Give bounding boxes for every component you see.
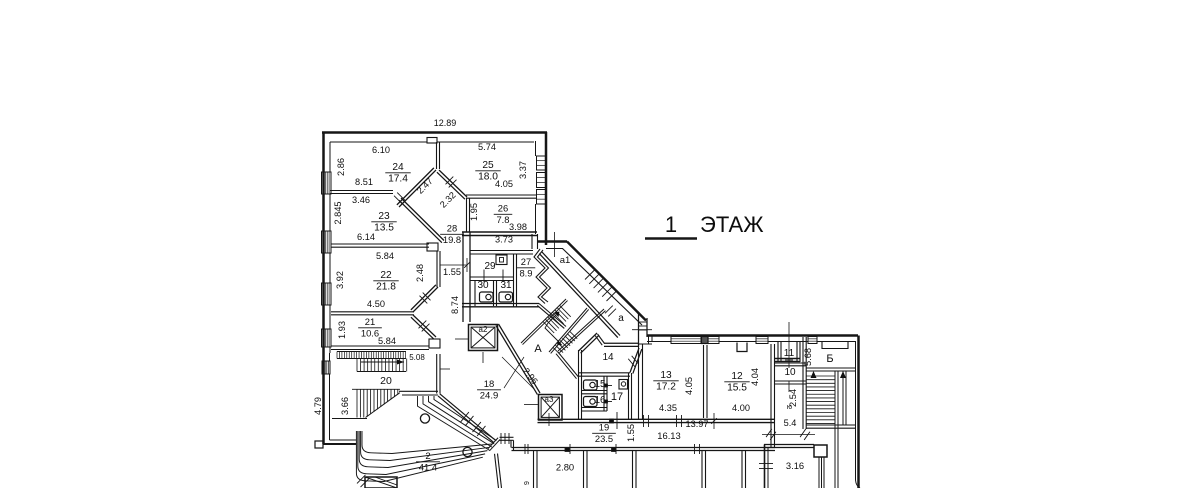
svg-text:13.97: 13.97 xyxy=(686,419,709,429)
svg-text:5.84: 5.84 xyxy=(376,251,394,261)
svg-text:8.9: 8.9 xyxy=(519,268,532,279)
svg-text:30: 30 xyxy=(477,280,489,291)
svg-text:2.48: 2.48 xyxy=(415,264,425,282)
svg-text:20: 20 xyxy=(380,375,392,387)
svg-text:3.73: 3.73 xyxy=(495,235,513,245)
svg-text:10.6: 10.6 xyxy=(361,328,379,339)
svg-text:7.8: 7.8 xyxy=(496,214,509,225)
svg-text:3.92: 3.92 xyxy=(335,271,345,289)
svg-text:4.35: 4.35 xyxy=(659,403,677,413)
svg-text:1.95: 1.95 xyxy=(469,203,479,221)
svg-text:16.13: 16.13 xyxy=(657,430,680,441)
svg-text:5.08: 5.08 xyxy=(409,353,425,362)
svg-text:1.55: 1.55 xyxy=(443,267,461,277)
svg-text:1: 1 xyxy=(665,212,677,237)
svg-text:4.79: 4.79 xyxy=(313,397,323,415)
svg-text:24: 24 xyxy=(392,162,404,173)
svg-text:6.10: 6.10 xyxy=(372,145,390,155)
svg-text:8.51: 8.51 xyxy=(355,177,373,187)
svg-text:a3: a3 xyxy=(545,395,554,404)
svg-text:9: 9 xyxy=(524,481,531,485)
svg-text:14: 14 xyxy=(602,352,614,363)
svg-text:2.86: 2.86 xyxy=(336,158,346,176)
svg-text:3.66: 3.66 xyxy=(340,397,350,415)
svg-text:24.9: 24.9 xyxy=(480,391,499,402)
svg-text:12: 12 xyxy=(731,371,743,382)
svg-text:2: 2 xyxy=(425,451,430,462)
svg-text:1.93: 1.93 xyxy=(337,321,347,339)
svg-text:23.5: 23.5 xyxy=(595,433,613,444)
svg-text:ю: ю xyxy=(787,404,792,411)
svg-text:28: 28 xyxy=(447,223,457,234)
svg-text:17: 17 xyxy=(611,391,623,403)
svg-text:4.05: 4.05 xyxy=(495,179,513,189)
svg-text:13.5: 13.5 xyxy=(374,223,394,234)
svg-text:1.55: 1.55 xyxy=(626,424,636,442)
svg-text:17.4: 17.4 xyxy=(388,174,408,185)
svg-text:15.5: 15.5 xyxy=(727,383,747,394)
svg-text:21: 21 xyxy=(365,316,375,327)
svg-text:a1: a1 xyxy=(560,255,571,266)
svg-text:8.74: 8.74 xyxy=(450,296,460,314)
svg-text:26: 26 xyxy=(498,203,508,214)
svg-text:5.4: 5.4 xyxy=(784,418,797,428)
svg-text:ЭТАЖ: ЭТАЖ xyxy=(700,212,764,237)
svg-text:2.80: 2.80 xyxy=(556,462,574,473)
svg-text:4.04: 4.04 xyxy=(750,368,760,386)
svg-text:25: 25 xyxy=(482,160,494,171)
svg-text:a2: a2 xyxy=(479,325,488,334)
svg-text:3.37: 3.37 xyxy=(518,161,528,179)
svg-text:6.14: 6.14 xyxy=(357,232,375,242)
svg-text:19.8: 19.8 xyxy=(443,234,461,245)
svg-text:29: 29 xyxy=(484,261,496,272)
svg-text:5.74: 5.74 xyxy=(478,142,496,152)
svg-text:Б: Б xyxy=(826,353,833,365)
svg-text:21.8: 21.8 xyxy=(376,282,396,293)
svg-text:4.50: 4.50 xyxy=(367,299,385,309)
svg-text:5.84: 5.84 xyxy=(378,336,396,346)
svg-text:17.2: 17.2 xyxy=(656,382,676,393)
svg-text:a: a xyxy=(618,313,624,324)
svg-text:10: 10 xyxy=(784,367,796,378)
svg-text:2.845: 2.845 xyxy=(333,202,343,225)
svg-text:12.89: 12.89 xyxy=(434,118,457,128)
svg-text:22: 22 xyxy=(380,270,392,281)
svg-text:18: 18 xyxy=(484,379,495,390)
svg-text:5.68: 5.68 xyxy=(803,348,813,366)
svg-text:3.98: 3.98 xyxy=(509,222,527,232)
svg-text:3.16: 3.16 xyxy=(786,460,804,471)
svg-text:4.00: 4.00 xyxy=(732,403,750,413)
svg-text:19: 19 xyxy=(599,422,609,433)
svg-text:A: A xyxy=(534,343,542,355)
svg-text:3.46: 3.46 xyxy=(352,195,370,205)
svg-text:27: 27 xyxy=(521,256,531,267)
svg-text:31: 31 xyxy=(500,280,512,291)
svg-text:41.4: 41.4 xyxy=(419,463,438,474)
svg-text:4.05: 4.05 xyxy=(684,377,694,395)
svg-text:13: 13 xyxy=(660,370,672,381)
svg-text:23: 23 xyxy=(378,211,390,222)
